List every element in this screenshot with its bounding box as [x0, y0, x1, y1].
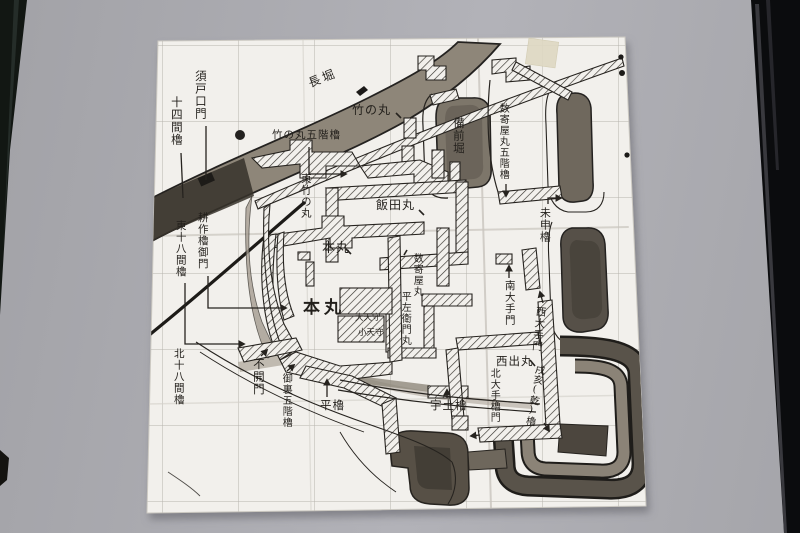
- label-onura-gokai-yagura: 御裏五階櫓: [280, 373, 291, 428]
- label-takenomaru-gokai-yagura: 竹の丸五階櫓: [272, 130, 341, 142]
- label-iidamaru: 飯田丸: [376, 199, 415, 212]
- photo-of-hand-drawn-castle-map: 長堀 須戸口門 十四間櫓 竹の丸 竹の丸五階櫓 東竹の丸 備前堀 数寄屋丸五階櫓…: [0, 0, 800, 533]
- label-kita-ote-yagura-mon: 北大手櫓門: [488, 368, 499, 423]
- label-bizenbori: 備前堀: [452, 117, 465, 155]
- label-sukiyamaru-gokai-yagura: 数寄屋丸五階櫓: [497, 103, 508, 180]
- label-uto-yagura: 宇土櫓: [430, 399, 468, 412]
- label-nagahori: 長堀: [307, 67, 340, 91]
- label-hitsujisaru-yagura: 未申櫓: [538, 207, 550, 243]
- label-sukiyamaru: 数寄屋丸: [411, 253, 422, 297]
- label-inui-yagura: 戌亥(乾)櫓: [523, 363, 545, 426]
- label-higashi-juhachiken-yagura: 東十八間櫓: [174, 220, 186, 278]
- label-akazu-mon: 不開門: [252, 358, 265, 396]
- label-ko-tenshu: 小天守: [358, 329, 384, 339]
- label-nishi-otemon: 西大手門: [530, 306, 546, 353]
- label-hirazaemon-maru: 平左衛門丸: [399, 291, 410, 346]
- label-juyonken-yagura: 十四間櫓: [170, 96, 183, 146]
- label-honmaru: 本丸: [303, 299, 345, 318]
- label-minami-otemon: 南大手門: [503, 280, 515, 326]
- label-sudoguchi-mon: 須戸口門: [194, 70, 207, 120]
- label-kita-juhachiken-yagura: 北十八間櫓: [172, 348, 184, 406]
- label-hira-yagura: 平櫓: [320, 399, 345, 412]
- label-nishidemaru: 西出丸: [496, 355, 534, 368]
- label-kosaku-yagura-gomon: 耕作櫓御門: [196, 212, 208, 270]
- label-honmaru-north: 本丸: [322, 242, 350, 257]
- map-labels: 長堀 須戸口門 十四間櫓 竹の丸 竹の丸五階櫓 東竹の丸 備前堀 数寄屋丸五階櫓…: [0, 0, 800, 533]
- label-higashi-takenomaru: 東竹の丸: [299, 173, 311, 219]
- label-takenomaru: 竹の丸: [352, 104, 391, 117]
- label-dai-tenshu: 大天守: [355, 314, 381, 324]
